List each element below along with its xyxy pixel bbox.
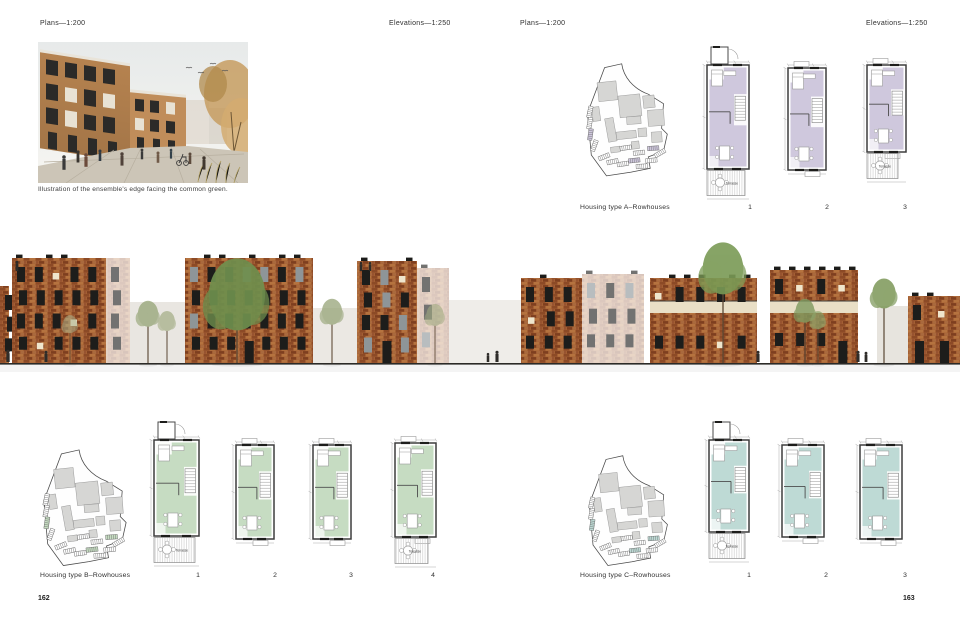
type-a-plan-number-1: 1 xyxy=(748,204,752,211)
ensemble-photo xyxy=(38,42,248,183)
right-elevations-scale-label: Elevations—1:250 xyxy=(866,20,928,27)
type-c-plan-number-2: 2 xyxy=(824,572,828,579)
svg-text:Terrasse: Terrasse xyxy=(879,165,891,169)
site-plan-type-b xyxy=(43,450,126,566)
person-silhouette xyxy=(6,350,9,362)
elevation-building xyxy=(908,293,960,363)
floor-plan-a-3: Terrasse xyxy=(863,59,908,183)
person-silhouette xyxy=(487,353,490,362)
svg-text:Terrasse: Terrasse xyxy=(409,550,421,554)
type-c-plan-number-3: 3 xyxy=(903,572,907,579)
svg-text:Terrasse: Terrasse xyxy=(176,549,188,553)
housing-type-c-label: Housing type C–Rowhouses xyxy=(580,572,671,579)
elevation-building xyxy=(582,271,644,363)
site-plan-type-c xyxy=(588,456,667,566)
svg-text:Terrasse: Terrasse xyxy=(726,182,738,186)
elevation-building xyxy=(12,255,106,363)
person-silhouette xyxy=(865,352,868,362)
floor-plan-a-1: Terrasse xyxy=(703,46,751,199)
photo-caption: Illustration of the ensemble's edge faci… xyxy=(38,186,228,193)
floor-plan-c-1: Terrasse xyxy=(705,421,751,562)
floor-plan-b-1: Terrasse xyxy=(150,421,201,566)
type-a-plan-number-3: 3 xyxy=(903,204,907,211)
photo-rowhouse-front xyxy=(40,49,130,162)
floor-plan-b-4: Terrasse xyxy=(391,437,438,568)
person-silhouette xyxy=(756,351,759,362)
left-page-number: 162 xyxy=(38,595,50,602)
housing-type-b-label: Housing type B–Rowhouses xyxy=(40,572,130,579)
type-c-plan-number-1: 1 xyxy=(747,572,751,579)
person-silhouette xyxy=(44,351,47,362)
elevation-building xyxy=(521,275,582,363)
floor-plan-c-2 xyxy=(778,439,826,544)
right-plans-scale-label: Plans—1:200 xyxy=(520,20,565,27)
street-elevation xyxy=(0,242,960,372)
person-silhouette xyxy=(16,261,19,271)
type-b-plan-number-3: 3 xyxy=(349,572,353,579)
book-spread: TerrasseTerrasseTerrasseTerrasseTerrasse… xyxy=(0,0,960,637)
elevation-building xyxy=(357,258,417,363)
type-a-plan-number-2: 2 xyxy=(825,204,829,211)
person-silhouette xyxy=(360,262,363,271)
floor-plan-b-2 xyxy=(232,439,276,546)
left-elevations-scale-label: Elevations—1:250 xyxy=(389,20,451,27)
elevation-building xyxy=(106,258,130,363)
type-b-plan-number-1: 1 xyxy=(196,572,200,579)
type-b-plan-number-2: 2 xyxy=(273,572,277,579)
site-plan-type-a xyxy=(587,64,668,176)
person-silhouette xyxy=(856,351,859,362)
ensemble-photo-svg xyxy=(38,42,248,183)
right-page-number: 163 xyxy=(903,595,915,602)
type-b-plan-number-4: 4 xyxy=(431,572,435,579)
person-silhouette xyxy=(369,262,372,271)
housing-type-a-label: Housing type A–Rowhouses xyxy=(580,204,670,211)
floor-plan-b-3 xyxy=(309,439,353,546)
floor-plan-c-3 xyxy=(856,439,904,546)
floor-plan-a-2 xyxy=(784,62,828,177)
svg-text:Terrasse: Terrasse xyxy=(726,545,738,549)
left-plans-scale-label: Plans—1:200 xyxy=(40,20,85,27)
person-silhouette xyxy=(495,351,498,362)
